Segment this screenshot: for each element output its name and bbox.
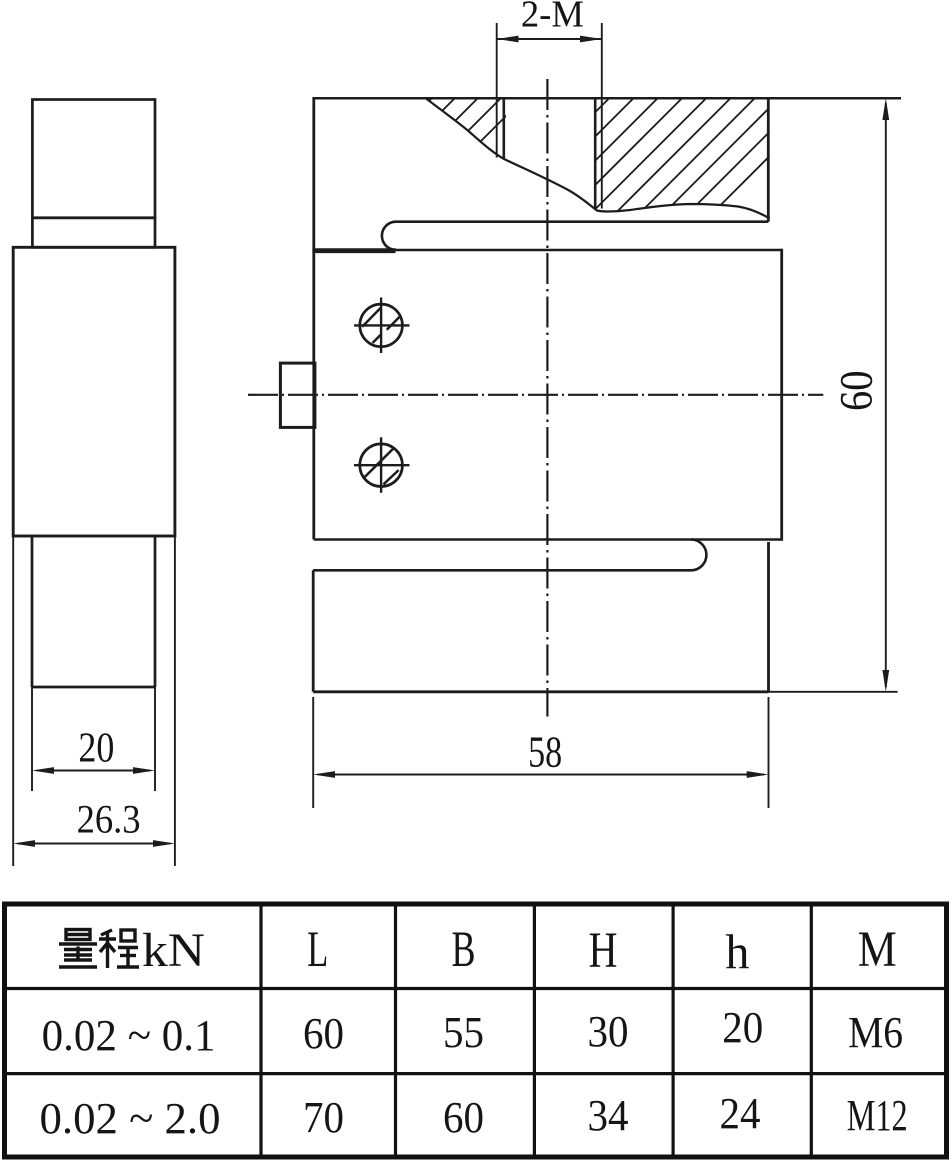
svg-text:M: M: [858, 922, 897, 978]
svg-text:20: 20: [78, 726, 114, 772]
svg-text:60: 60: [831, 370, 883, 411]
svg-text:24: 24: [720, 1089, 761, 1138]
svg-text:kN: kN: [142, 924, 205, 977]
svg-text:H: H: [589, 923, 618, 979]
svg-text:34: 34: [588, 1091, 629, 1140]
svg-text:20: 20: [722, 1003, 763, 1052]
svg-text:M12: M12: [847, 1091, 908, 1140]
svg-text:60: 60: [303, 1009, 344, 1058]
svg-text:M6: M6: [848, 1008, 903, 1057]
svg-text:2-M: 2-M: [521, 0, 584, 36]
svg-text:B: B: [452, 922, 476, 978]
svg-text:26.3: 26.3: [77, 797, 141, 842]
svg-text:h: h: [725, 924, 749, 979]
svg-text:30: 30: [588, 1007, 629, 1056]
svg-text:L: L: [307, 922, 328, 978]
svg-text:70: 70: [303, 1093, 344, 1142]
svg-text:0.02 ~ 0.1: 0.02 ~ 0.1: [42, 1011, 216, 1060]
svg-text:55: 55: [443, 1008, 484, 1057]
svg-text:0.02 ~ 2.0: 0.02 ~ 2.0: [40, 1094, 221, 1143]
svg-text:60: 60: [443, 1093, 484, 1142]
svg-text:58: 58: [528, 728, 562, 777]
